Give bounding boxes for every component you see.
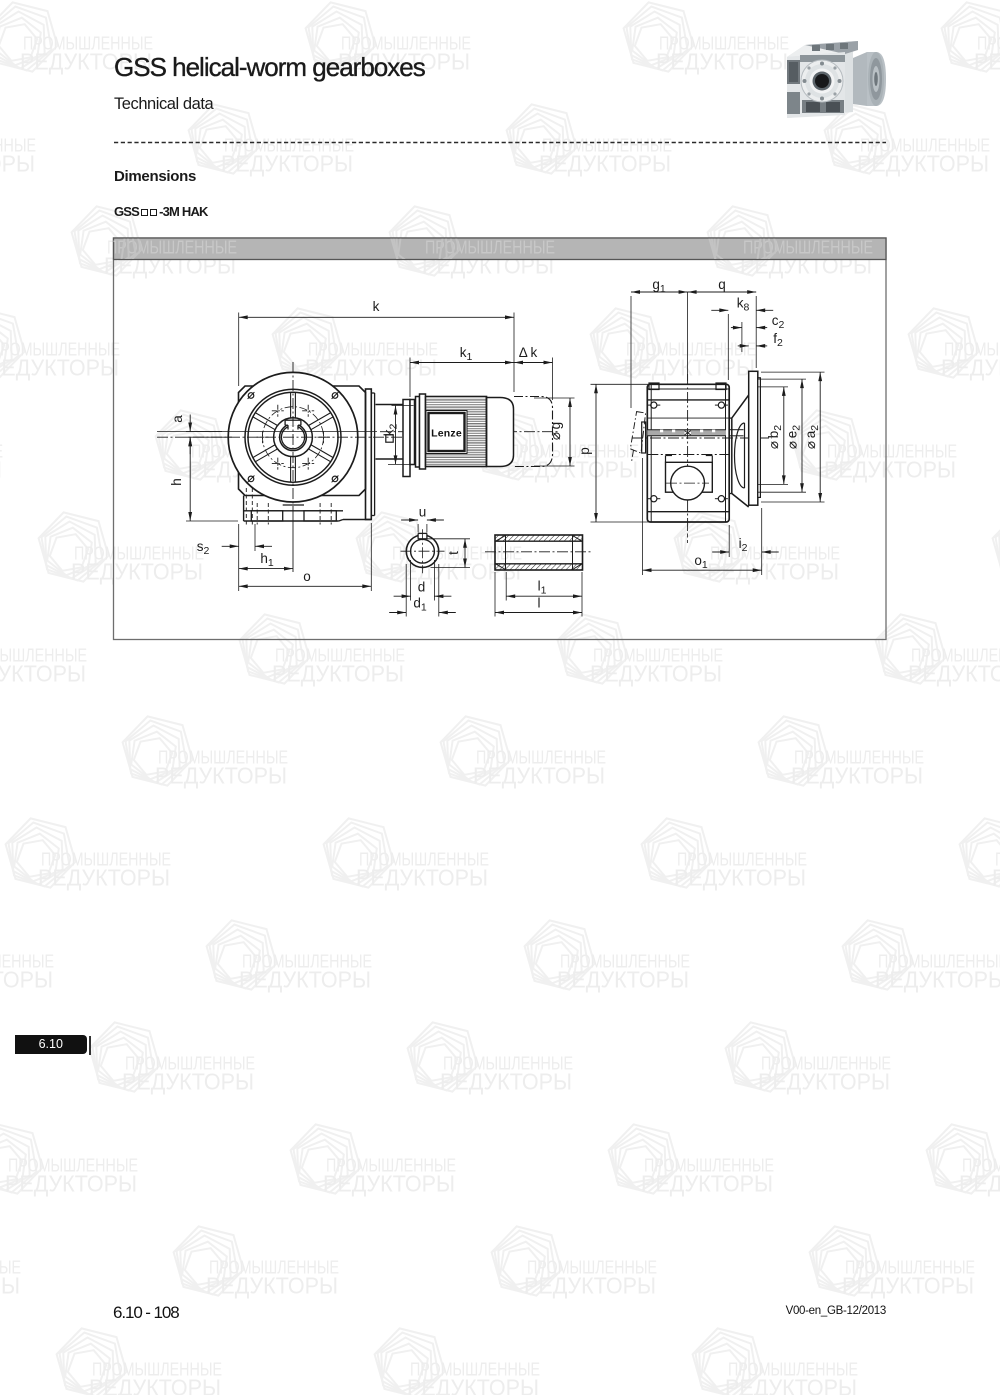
svg-text:h1: h1: [260, 551, 274, 569]
svg-text:o: o: [303, 569, 311, 584]
svg-text:k1: k1: [460, 345, 473, 363]
svg-text:Δ k: Δ k: [519, 345, 538, 360]
svg-text:⌀ b2: ⌀ b2: [766, 425, 784, 449]
svg-text:q: q: [718, 277, 726, 292]
svg-text:ПРОМЫШЛЕННЫЕ: ПРОМЫШЛЕННЫЕ: [107, 238, 237, 258]
svg-text:h: h: [169, 478, 184, 486]
svg-text:o1: o1: [694, 553, 708, 571]
svg-text:⌀ g: ⌀ g: [548, 422, 563, 440]
svg-text:u: u: [419, 505, 427, 520]
svg-text:ПРОМЫШЛЕННЫЕ: ПРОМЫШЛЕННЫЕ: [743, 238, 873, 258]
svg-text:d1: d1: [413, 596, 427, 614]
svg-text:p: p: [577, 447, 592, 455]
svg-text:l1: l1: [538, 579, 547, 597]
svg-text:t: t: [446, 551, 461, 555]
svg-text:Lenze: Lenze: [431, 428, 462, 440]
svg-text:k: k: [373, 299, 380, 314]
svg-text:k2: k2: [382, 424, 400, 437]
svg-text:ПРОМЫШЛЕННЫЕ: ПРОМЫШЛЕННЫЕ: [425, 238, 555, 258]
svg-text:c2: c2: [772, 313, 785, 331]
svg-text:i2: i2: [739, 536, 748, 554]
svg-text:d: d: [418, 580, 426, 595]
svg-text:l: l: [538, 596, 541, 611]
svg-text:s2: s2: [197, 539, 210, 557]
svg-text:⌀ a2: ⌀ a2: [803, 425, 821, 449]
svg-text:⌀ e2: ⌀ e2: [785, 425, 803, 449]
svg-text:k8: k8: [737, 296, 750, 314]
svg-text:f2: f2: [773, 331, 783, 349]
svg-text:a: a: [170, 415, 185, 423]
